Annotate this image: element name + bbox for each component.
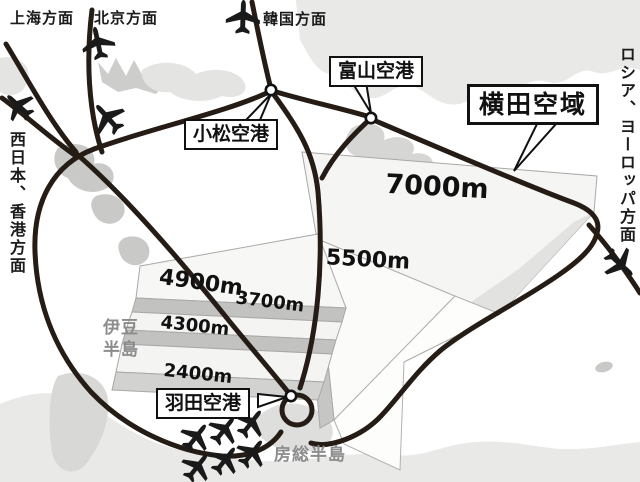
komatsu-node (266, 85, 276, 95)
yokota-pointer (514, 124, 556, 171)
toyama-airport-label: 富山空港 (329, 56, 423, 87)
airplane-icon-beijing (78, 23, 117, 62)
map-canvas (0, 0, 640, 482)
direction-label-russia-europe: ロシア、ヨーロッパ方面 (614, 46, 638, 276)
land-mid-blob (142, 63, 246, 101)
direction-label-beijing: 北京方面 (94, 7, 158, 28)
izu-peninsula-label: 伊豆 半島 (103, 317, 139, 361)
mountain-blob-3 (118, 236, 149, 265)
izu-peninsula-line1: 伊豆 (103, 317, 139, 339)
yokota-airspace-diagram: 上海方面 北京方面 韓国方面 ロシア、ヨーロッパ方面 西日本、香港方面 小松空港… (0, 0, 640, 482)
yokota-airspace-title: 横田空域 (467, 84, 599, 125)
toyama-node (366, 113, 376, 123)
altitude-label-7000: 7000m (385, 169, 490, 205)
haneda-node (286, 391, 296, 401)
boso-peninsula-label: 房総半島 (274, 444, 346, 466)
mountain-blob-2 (91, 194, 124, 224)
komatsu-airport-label: 小松空港 (184, 119, 278, 150)
direction-label-korea: 韓国方面 (263, 8, 327, 29)
izu-peninsula-line2: 半島 (103, 339, 139, 361)
airspace-blocks (112, 152, 597, 470)
altitude-label-5500: 5500m (325, 245, 410, 274)
direction-label-west-japan: 西日本、香港方面 (4, 131, 28, 321)
small-island (594, 360, 614, 374)
haneda-airport-label: 羽田空港 (156, 388, 250, 419)
direction-label-shanghai: 上海方面 (10, 7, 74, 28)
